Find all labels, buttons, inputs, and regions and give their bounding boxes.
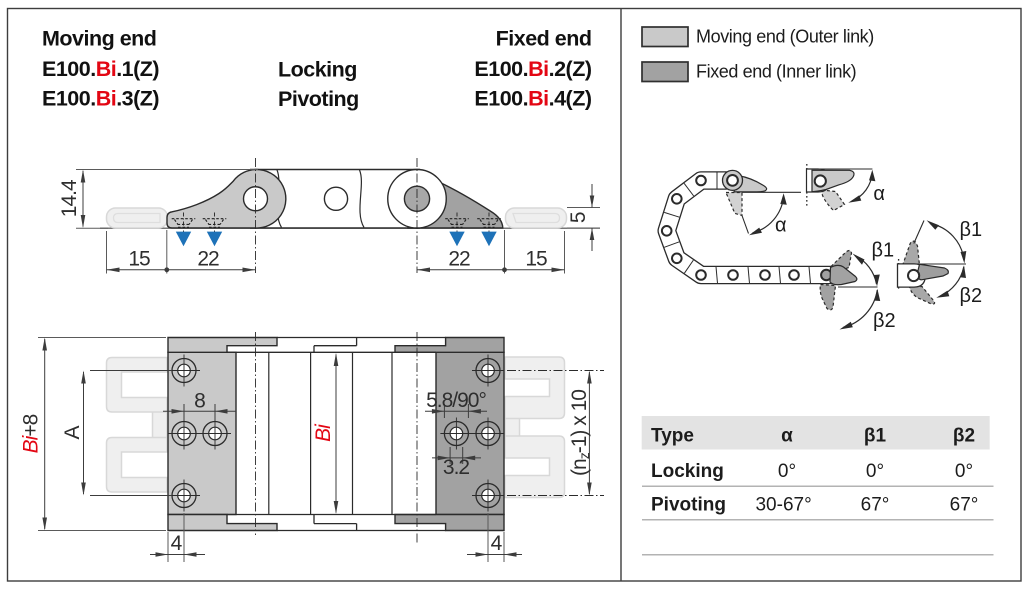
svg-text:0°: 0° bbox=[778, 461, 796, 482]
svg-text:0°: 0° bbox=[866, 461, 884, 482]
svg-text:E100.Bi.2(Z): E100.Bi.2(Z) bbox=[474, 57, 591, 81]
svg-text:Locking: Locking bbox=[278, 58, 357, 82]
svg-text:α: α bbox=[781, 426, 793, 447]
svg-text:5.8/90°: 5.8/90° bbox=[426, 389, 486, 412]
svg-text:E100.Bi.1(Z): E100.Bi.1(Z) bbox=[42, 57, 159, 81]
svg-text:Type: Type bbox=[651, 426, 694, 447]
svg-text:Pivoting: Pivoting bbox=[651, 495, 726, 516]
svg-text:β1: β1 bbox=[864, 426, 887, 447]
svg-text:Bi+8: Bi+8 bbox=[20, 414, 43, 453]
svg-text:5: 5 bbox=[567, 212, 590, 223]
svg-text:E100.Bi.3(Z): E100.Bi.3(Z) bbox=[42, 87, 159, 111]
svg-text:22: 22 bbox=[197, 248, 219, 271]
svg-text:α: α bbox=[873, 183, 885, 205]
svg-text:α: α bbox=[775, 215, 787, 237]
svg-text:15: 15 bbox=[525, 248, 547, 271]
svg-text:4: 4 bbox=[491, 532, 503, 555]
svg-text:Moving end: Moving end bbox=[42, 27, 156, 51]
svg-text:Moving end (Outer link): Moving end (Outer link) bbox=[696, 27, 874, 47]
svg-text:30-67°: 30-67° bbox=[755, 495, 811, 516]
svg-text:Locking: Locking bbox=[651, 461, 724, 482]
svg-text:67°: 67° bbox=[950, 495, 979, 516]
svg-text:Fixed end (Inner link): Fixed end (Inner link) bbox=[696, 62, 856, 82]
svg-text:E100.Bi.4(Z): E100.Bi.4(Z) bbox=[474, 87, 591, 111]
svg-text:67°: 67° bbox=[861, 495, 890, 516]
svg-text:8: 8 bbox=[194, 390, 205, 413]
svg-text:4: 4 bbox=[171, 532, 183, 555]
svg-text:A: A bbox=[61, 426, 84, 440]
svg-text:β1: β1 bbox=[960, 219, 983, 241]
svg-text:15: 15 bbox=[128, 248, 150, 271]
svg-text:22: 22 bbox=[448, 248, 470, 271]
svg-text:β2: β2 bbox=[960, 285, 983, 307]
svg-text:(nz-1) x 10: (nz-1) x 10 bbox=[568, 390, 592, 476]
svg-text:14.4: 14.4 bbox=[58, 179, 81, 217]
svg-text:Pivoting: Pivoting bbox=[278, 87, 359, 111]
svg-text:3.2: 3.2 bbox=[443, 456, 470, 479]
svg-text:Fixed end: Fixed end bbox=[496, 27, 592, 51]
svg-text:β1: β1 bbox=[872, 240, 895, 262]
svg-text:0°: 0° bbox=[955, 461, 973, 482]
svg-text:β2: β2 bbox=[953, 426, 975, 447]
svg-text:Bi: Bi bbox=[312, 423, 335, 442]
svg-text:β2: β2 bbox=[873, 310, 896, 332]
